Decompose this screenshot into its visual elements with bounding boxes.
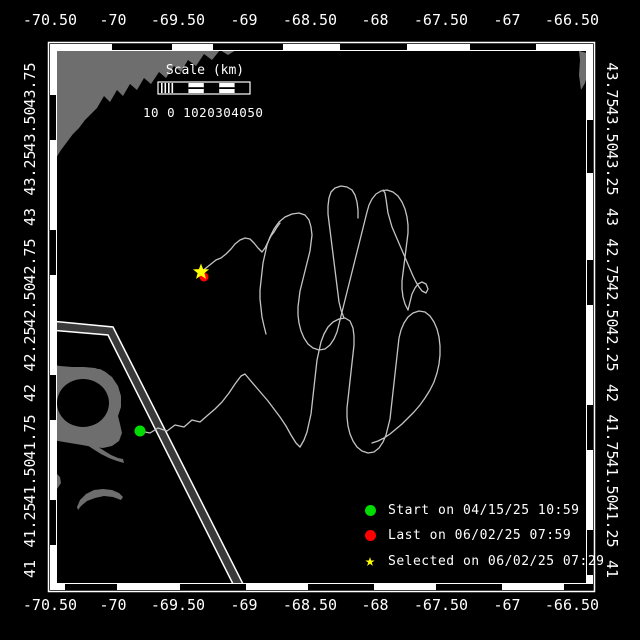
- selected-star-icon: ★: [362, 553, 378, 569]
- scalebar-tick-labels: 10 0 1020304050: [143, 105, 273, 120]
- glider-track-map: -70.50-70-69.50-69-68.50-68-67.50-67-66.…: [0, 0, 640, 640]
- legend-item: ★Selected on 06/02/25 07:29: [362, 551, 605, 571]
- legend-item: Start on 04/15/25 10:59: [362, 500, 580, 520]
- axis-tick-label: 41: [21, 527, 39, 611]
- last-dot-icon: [362, 527, 378, 543]
- axis-tick-label: -66.50: [530, 11, 614, 29]
- axis-tick-label: 41: [603, 527, 621, 611]
- scalebar-title: Scale (km): [150, 63, 260, 78]
- legend-label: Start on 04/15/25 10:59: [388, 503, 580, 518]
- axis-tick-label: -66.50: [530, 596, 614, 614]
- legend-item: Last on 06/02/25 07:59: [362, 525, 571, 545]
- legend-label: Last on 06/02/25 07:59: [388, 528, 571, 543]
- scalebar: [158, 82, 250, 94]
- cape-cod-bay: [57, 379, 109, 427]
- legend-label: Selected on 06/02/25 07:29: [388, 554, 605, 569]
- start-position-marker[interactable]: [135, 426, 146, 437]
- start-dot-icon: [362, 502, 378, 518]
